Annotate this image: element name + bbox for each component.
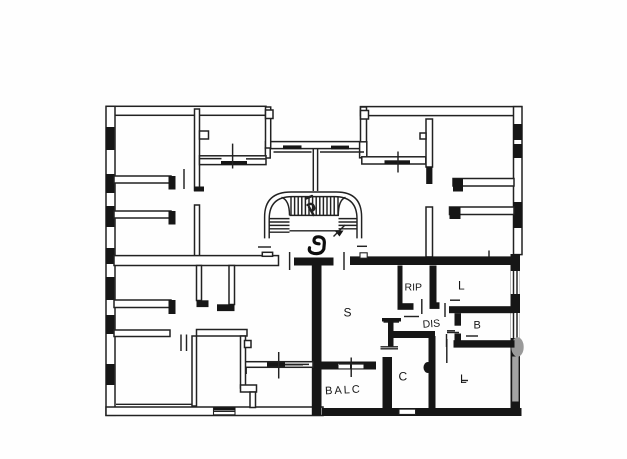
- svg-text:B: B: [474, 320, 481, 332]
- svg-text:L: L: [460, 372, 467, 386]
- svg-text:BALC: BALC: [325, 384, 362, 398]
- svg-text:L: L: [458, 279, 465, 293]
- svg-text:C: C: [399, 370, 408, 384]
- svg-text:S: S: [344, 306, 352, 320]
- svg-text:RIP: RIP: [405, 282, 423, 294]
- svg-text:DIS: DIS: [422, 318, 440, 331]
